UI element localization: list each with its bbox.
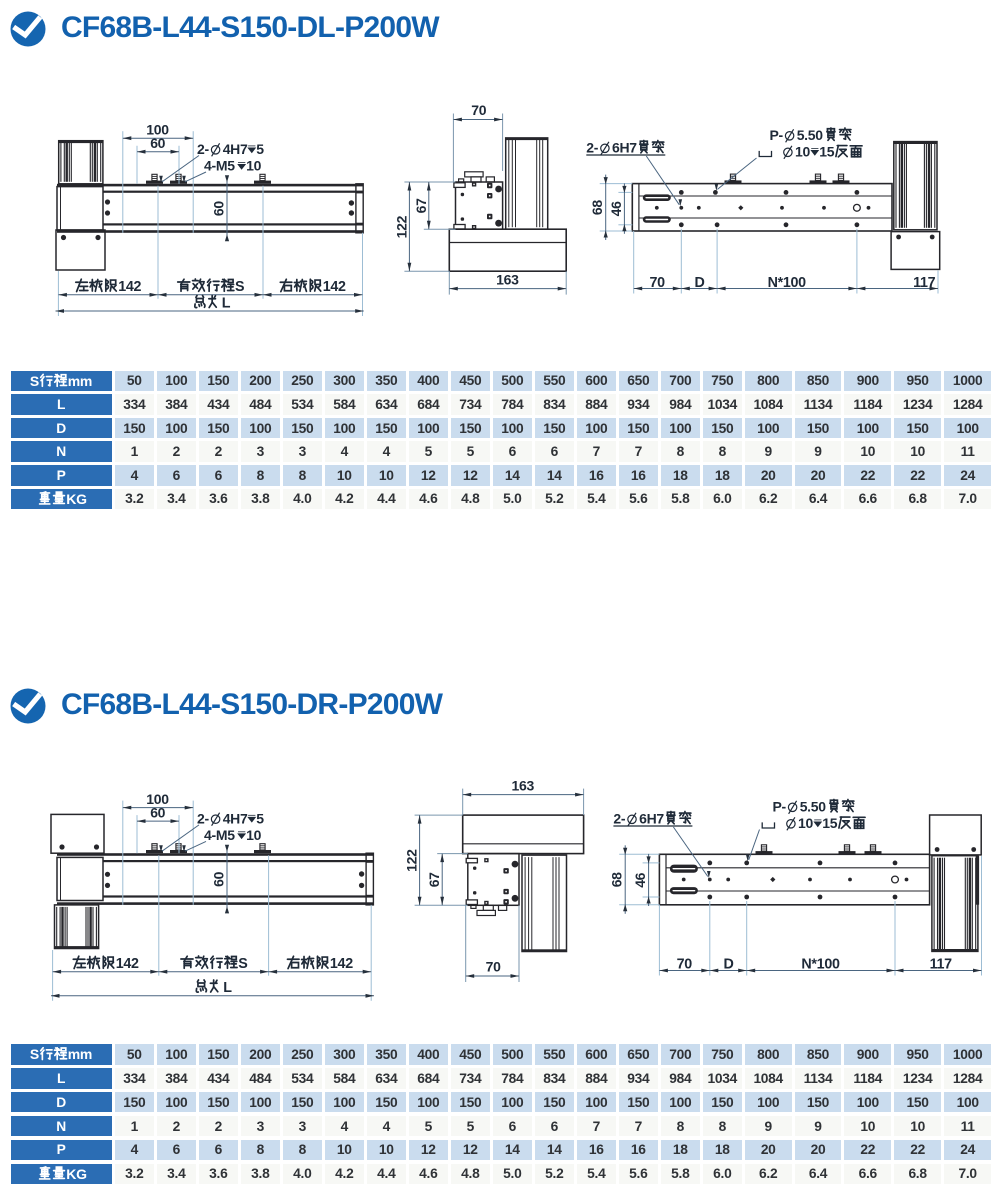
svg-text:S: S bbox=[30, 1046, 39, 1062]
svg-text:mm: mm bbox=[68, 1046, 92, 1062]
svg-text:KG: KG bbox=[66, 1166, 87, 1182]
